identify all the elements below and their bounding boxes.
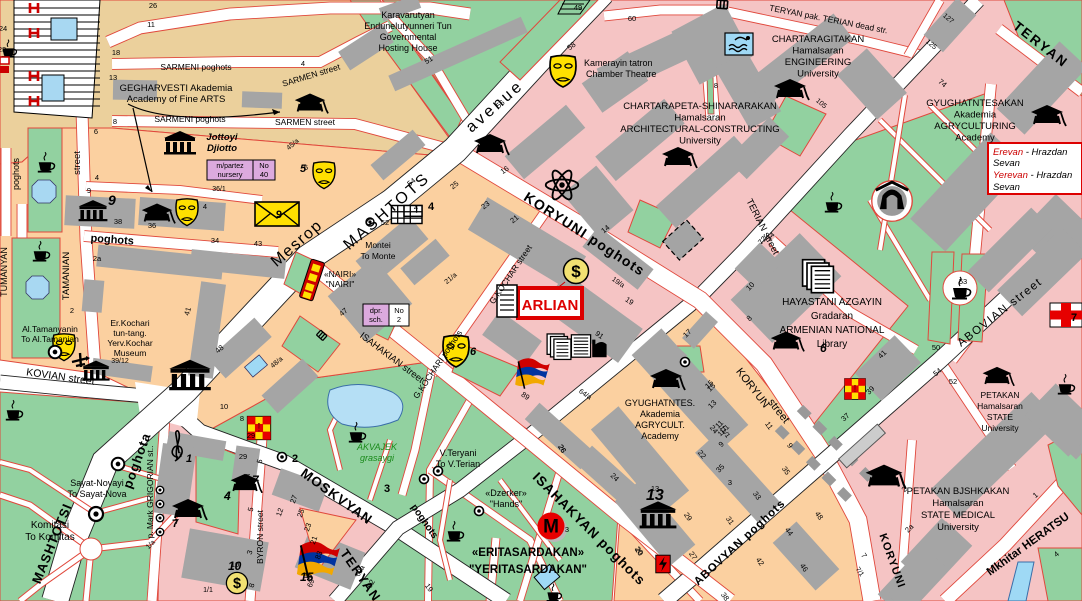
- svg-text:Sevan: Sevan: [993, 158, 1020, 169]
- svg-text:To Monte: To Monte: [361, 251, 396, 261]
- svg-text:7: 7: [246, 472, 250, 481]
- svg-text:dpr.: dpr.: [370, 306, 383, 315]
- svg-text:CHARTARAPETA-SHINARARAKAN: CHARTARAPETA-SHINARARAKAN: [623, 101, 777, 112]
- svg-text:STATE: STATE: [987, 412, 1013, 422]
- svg-text:Hamalsaran: Hamalsaran: [674, 113, 725, 124]
- svg-text:Montei: Montei: [365, 240, 391, 250]
- svg-text:V.Teryani: V.Teryani: [440, 448, 477, 458]
- svg-text:Hamalsaran: Hamalsaran: [932, 498, 983, 509]
- svg-text:SARMENI poghots: SARMENI poghots: [154, 114, 225, 124]
- svg-text:Yerv.Kochar: Yerv.Kochar: [107, 338, 153, 348]
- svg-text:AGRYCULTURING: AGRYCULTURING: [934, 121, 1015, 132]
- svg-text:Governmental: Governmental: [380, 32, 437, 42]
- svg-text:«NAIRI»: «NAIRI»: [324, 269, 356, 279]
- svg-text:Academy: Academy: [955, 133, 995, 144]
- svg-text:Al.Tamanyanin: Al.Tamanyanin: [22, 324, 78, 334]
- svg-text:6: 6: [94, 127, 98, 136]
- svg-text:4: 4: [414, 203, 418, 212]
- svg-text:AKVAJEK: AKVAJEK: [356, 442, 398, 452]
- svg-text:Kamerayin tatron: Kamerayin tatron: [584, 58, 653, 68]
- svg-text:2a: 2a: [93, 254, 102, 263]
- svg-text:Gradaran: Gradaran: [811, 311, 853, 322]
- svg-text:Academy: Academy: [641, 431, 679, 441]
- svg-text:9: 9: [87, 186, 91, 195]
- svg-text:15: 15: [300, 570, 314, 584]
- svg-text:26: 26: [149, 1, 157, 10]
- svg-text:4: 4: [95, 173, 99, 182]
- svg-text:2: 2: [292, 453, 298, 465]
- svg-text:poghots: poghots: [11, 157, 21, 190]
- svg-text:52: 52: [949, 377, 957, 386]
- svg-text:"YERITASARDAKAN": "YERITASARDAKAN": [469, 564, 587, 576]
- svg-text:GYUGHATNTES.: GYUGHATNTES.: [625, 398, 695, 408]
- svg-text:7: 7: [1071, 312, 1077, 324]
- svg-text:University: University: [981, 423, 1019, 433]
- svg-text:Erevan - Hrazdan: Erevan - Hrazdan: [993, 147, 1067, 158]
- svg-text:29: 29: [247, 431, 255, 440]
- svg-text:m/partez: m/partez: [216, 163, 244, 170]
- svg-text:University: University: [679, 136, 721, 147]
- svg-text:No: No: [394, 306, 404, 315]
- svg-text:To V.Terian: To V.Terian: [436, 459, 480, 469]
- svg-text:sch.: sch.: [369, 315, 383, 324]
- svg-text:24: 24: [0, 24, 7, 33]
- svg-text:STATE MEDICAL: STATE MEDICAL: [921, 510, 995, 521]
- svg-text:SARMEN street: SARMEN street: [275, 117, 336, 127]
- svg-text:Er.Kochari: Er.Kochari: [110, 318, 149, 328]
- svg-text:Jottoyi: Jottoyi: [206, 132, 238, 143]
- svg-text:23: 23: [0, 45, 6, 54]
- svg-text:49: 49: [574, 3, 582, 12]
- svg-text:10: 10: [228, 559, 242, 573]
- svg-text:Hosting House: Hosting House: [378, 43, 437, 53]
- svg-text:36/1: 36/1: [212, 186, 226, 193]
- svg-text:PETAKAN BJSHKAKAN: PETAKAN BJSHKAKAN: [907, 486, 1010, 497]
- svg-text:6: 6: [470, 346, 477, 358]
- svg-text:8: 8: [113, 117, 117, 126]
- svg-text:PETAKAN: PETAKAN: [980, 390, 1019, 400]
- svg-text:"Hands": "Hands": [490, 499, 522, 509]
- svg-text:p. Mark GRIGORIAN st..: p. Mark GRIGORIAN st..: [145, 445, 155, 538]
- svg-text:1/1: 1/1: [203, 587, 213, 594]
- svg-text:To Komitas: To Komitas: [25, 532, 74, 543]
- svg-text:Yerevan - Hrazdan: Yerevan - Hrazdan: [993, 170, 1072, 181]
- svg-text:To Al.Tamanian: To Al.Tamanian: [21, 334, 79, 344]
- svg-text:No: No: [259, 161, 269, 170]
- svg-text:4: 4: [203, 202, 207, 211]
- svg-text:Akademia: Akademia: [640, 409, 680, 419]
- svg-text:«ERITASARDAKAN»: «ERITASARDAKAN»: [472, 547, 584, 559]
- svg-text:9: 9: [108, 192, 116, 208]
- svg-text:Karavarutyan: Karavarutyan: [381, 10, 435, 20]
- svg-text:To Sayat-Nova: To Sayat-Nova: [67, 489, 126, 499]
- svg-text:SARMENI poghots: SARMENI poghots: [160, 62, 231, 72]
- svg-text:1: 1: [178, 450, 182, 459]
- svg-text:4: 4: [223, 489, 231, 503]
- svg-text:ARCHITECTURAL-CONSTRUCTING: ARCHITECTURAL-CONSTRUCTING: [620, 124, 779, 135]
- svg-text:4: 4: [301, 59, 305, 68]
- svg-text:13: 13: [646, 487, 664, 504]
- svg-text:Hamalsaran: Hamalsaran: [977, 401, 1023, 411]
- svg-text:CHARTARAGITAKAN: CHARTARAGITAKAN: [772, 34, 865, 45]
- svg-text:Academy of Fine ARTS: Academy of Fine ARTS: [127, 94, 226, 105]
- svg-text:ARLIAN: ARLIAN: [522, 297, 579, 314]
- svg-text:tun-tang.: tun-tang.: [113, 328, 147, 338]
- svg-text:53: 53: [959, 277, 967, 286]
- svg-text:grasaygi: grasaygi: [360, 453, 395, 463]
- svg-text:Djiotto: Djiotto: [207, 143, 237, 154]
- svg-text:11: 11: [147, 20, 155, 29]
- svg-text:13: 13: [109, 73, 117, 82]
- svg-text:50: 50: [932, 343, 940, 352]
- svg-text:Museum: Museum: [114, 348, 147, 358]
- svg-text:29: 29: [239, 452, 247, 461]
- svg-text:Sevan: Sevan: [993, 182, 1020, 193]
- svg-text:2: 2: [397, 315, 401, 324]
- svg-text:Chamber Theatre: Chamber Theatre: [586, 69, 656, 79]
- svg-text:7: 7: [172, 518, 178, 530]
- svg-text:Akademia: Akademia: [954, 110, 997, 121]
- svg-text:GYUGHATNTESAKAN: GYUGHATNTESAKAN: [926, 98, 1024, 109]
- svg-text:«Dzerker»: «Dzerker»: [485, 488, 527, 498]
- svg-text:8: 8: [240, 414, 244, 423]
- svg-text:34: 34: [211, 236, 219, 245]
- svg-text:Endunelutyunneri Tun: Endunelutyunneri Tun: [364, 21, 452, 31]
- svg-text:1: 1: [186, 453, 192, 465]
- svg-text:8: 8: [714, 81, 718, 90]
- svg-text:street: street: [72, 151, 83, 175]
- svg-text:University: University: [937, 522, 979, 533]
- svg-text:38: 38: [114, 217, 122, 226]
- svg-text:TAMANIAN: TAMANIAN: [61, 252, 72, 301]
- svg-text:GEGHARVESTI Akademia: GEGHARVESTI Akademia: [120, 83, 234, 94]
- svg-text:18: 18: [112, 48, 120, 57]
- svg-text:5: 5: [300, 163, 307, 175]
- svg-text:ARMENIAN NATIONAL: ARMENIAN NATIONAL: [780, 325, 885, 336]
- svg-text:nursery: nursery: [217, 170, 242, 179]
- svg-text:52: 52: [381, 218, 389, 227]
- svg-text:2: 2: [70, 306, 74, 315]
- svg-text:4: 4: [428, 201, 435, 213]
- svg-text:39/12: 39/12: [111, 358, 129, 365]
- svg-text:"NAIRI": "NAIRI": [326, 279, 355, 289]
- svg-text:AGRYCULT.: AGRYCULT.: [635, 420, 685, 430]
- svg-text:ENGINEERING: ENGINEERING: [785, 57, 852, 68]
- svg-text:10: 10: [220, 402, 228, 411]
- svg-text:6: 6: [820, 341, 827, 355]
- svg-text:Hamalsaran: Hamalsaran: [792, 46, 843, 57]
- svg-text:Sayat-Novayi: Sayat-Novayi: [70, 478, 124, 488]
- svg-text:3: 3: [728, 478, 732, 487]
- svg-text:University: University: [797, 69, 839, 80]
- svg-text:40: 40: [260, 170, 268, 179]
- svg-text:43: 43: [254, 239, 262, 248]
- svg-text:BYRON street: BYRON street: [255, 509, 265, 563]
- svg-text:3: 3: [565, 525, 569, 534]
- svg-text:TUMANYAN: TUMANYAN: [0, 247, 9, 297]
- svg-text:HAYASTANI AZGAYIN: HAYASTANI AZGAYIN: [782, 297, 882, 308]
- svg-text:36: 36: [148, 221, 156, 230]
- svg-text:Komitasi: Komitasi: [31, 520, 69, 531]
- svg-text:3: 3: [384, 483, 390, 495]
- svg-text:60: 60: [628, 14, 636, 23]
